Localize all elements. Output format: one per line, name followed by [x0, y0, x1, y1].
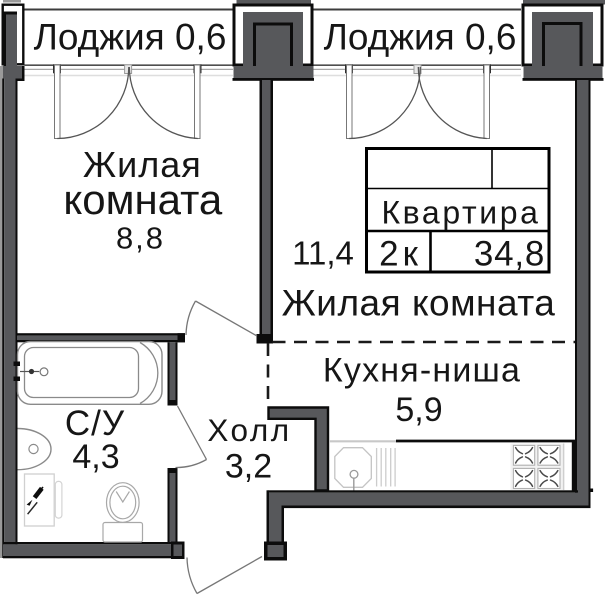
- svg-text:Кухня-ниша: Кухня-ниша: [323, 352, 521, 390]
- svg-text:8,8: 8,8: [116, 221, 165, 256]
- svg-text:комната: комната: [63, 176, 222, 223]
- svg-text:Квартира: Квартира: [381, 195, 540, 231]
- svg-text:11,4: 11,4: [292, 235, 354, 272]
- svg-text:2к: 2к: [379, 235, 422, 274]
- svg-text:4,3: 4,3: [72, 438, 119, 476]
- svg-text:Жилая комната: Жилая комната: [282, 283, 556, 324]
- svg-text:Лоджия 0,6: Лоджия 0,6: [324, 17, 517, 58]
- svg-text:Лоджия 0,6: Лоджия 0,6: [34, 17, 227, 58]
- svg-text:34,8: 34,8: [474, 235, 545, 274]
- svg-text:5,9: 5,9: [395, 391, 442, 429]
- svg-text:3,2: 3,2: [225, 448, 272, 486]
